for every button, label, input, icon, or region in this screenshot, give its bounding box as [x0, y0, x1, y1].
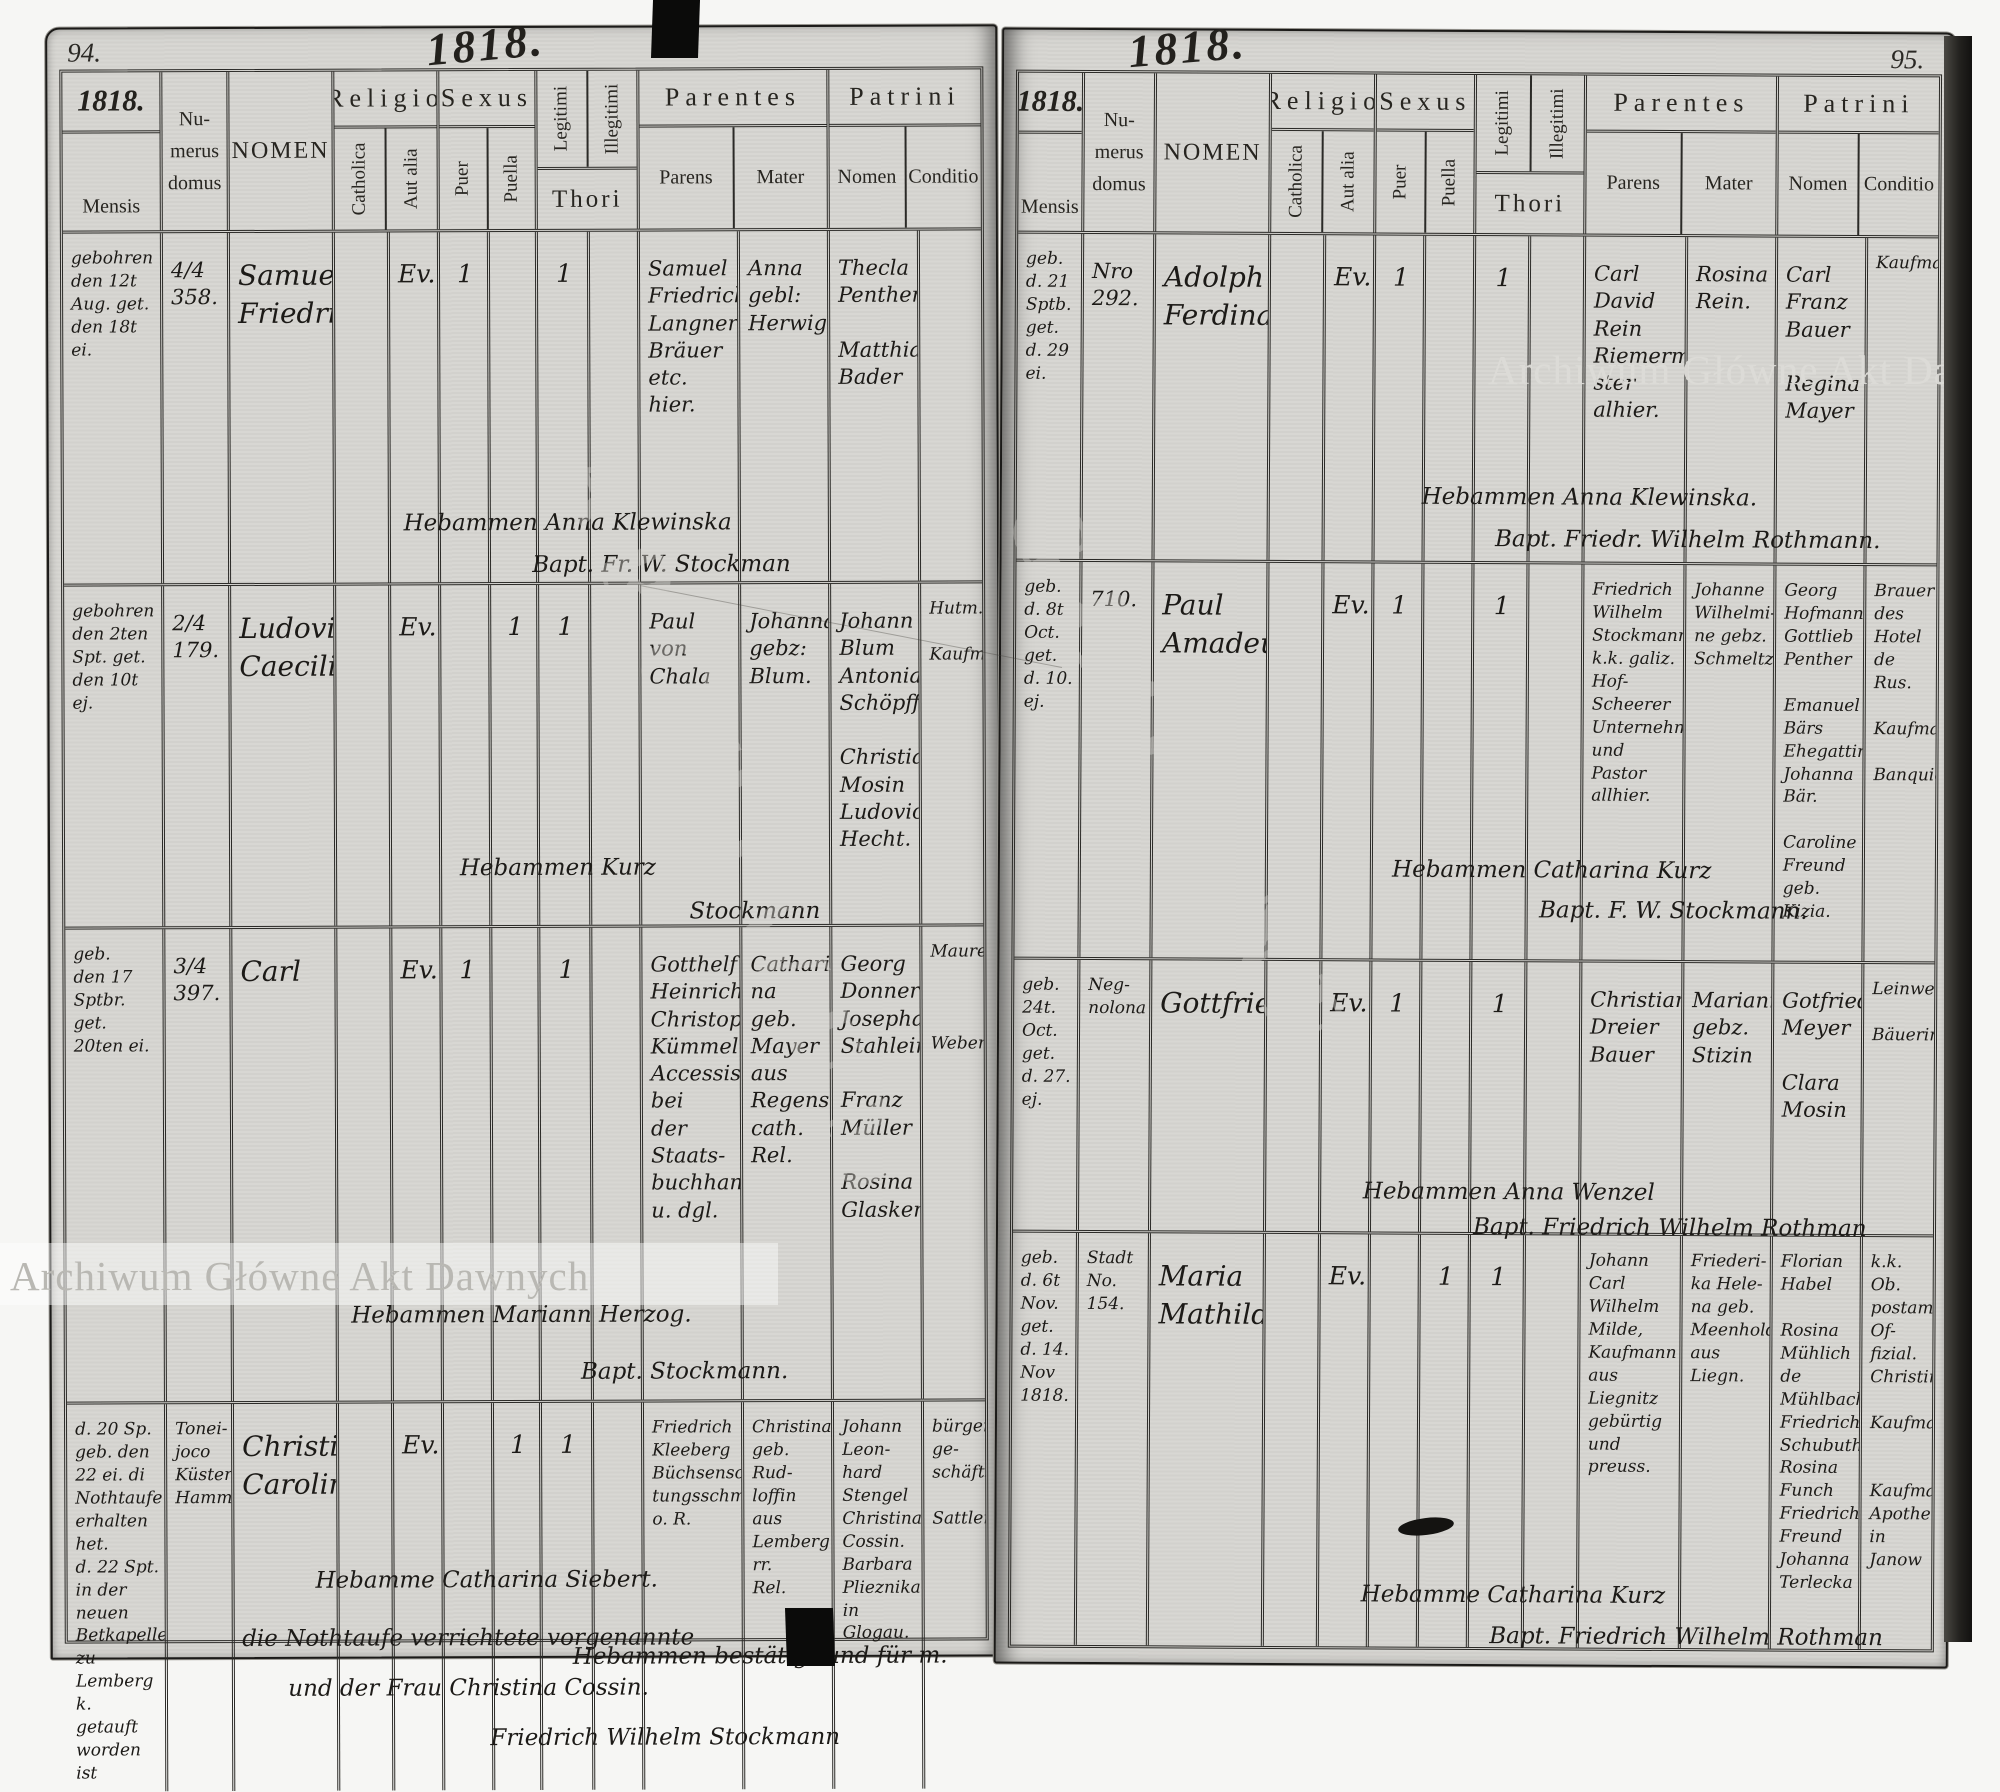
cell-conditio: Brauer des Hotel de Rus. Kaufmann Banqui… — [1861, 566, 1936, 961]
year-heading: 1818. — [424, 13, 547, 77]
header-puella: Puella — [1424, 132, 1474, 233]
header-numerus: Nu- merus domus — [159, 72, 227, 230]
cell-patrini-nomen: Thecla Penther Matthias Bader — [827, 231, 918, 581]
midwife-note: Hebamme Catharina Kurz — [1361, 1580, 1666, 1611]
cell-conditio: Leinweber Bäuerin — [1860, 964, 1934, 1234]
cell-conditio: k.k. Ob. postamts Of- fizial. Christin K… — [1858, 1237, 1933, 1649]
cell-numerus: Stadt No. 154. — [1074, 1233, 1148, 1645]
cell-nomen: Paul Amadeus — [1149, 562, 1266, 958]
cell-patrini-nomen: Georg Donner Josepha Stahlein Franz Müll… — [829, 927, 921, 1399]
header-nomen: NOMEN — [1153, 73, 1269, 232]
baptizer-note: Bapt. Friedrich Wilhelm Rothman — [1473, 1213, 1867, 1245]
midwife-note: Hebammen Kurz — [460, 853, 656, 884]
year-heading: 1818. — [1126, 16, 1248, 79]
cell-patrini-nomen: Carl Franz Bauer Regina Mayer — [1773, 238, 1865, 563]
header-conditio: Conditio — [904, 126, 981, 227]
header-nomen: NOMEN — [226, 72, 332, 230]
midwife-note: Hebammen Anna Klewinska. — [1422, 483, 1758, 515]
cell-numerus: 4/4 358. — [160, 233, 228, 583]
header-puer: Puer — [1376, 131, 1424, 232]
register-row: geb. d. 6t Nov. get. d. 14. Nov 1818. St… — [1011, 1230, 1933, 1650]
header-mensis-label: Mensis — [82, 195, 140, 218]
register-row: geb. d. 21 Sptb. get. d. 29 ei. Nro 292.… — [1017, 231, 1939, 564]
header-puer: Puer — [440, 128, 487, 229]
cell-catholica — [333, 585, 389, 925]
cell-mensis: geb. den 17 Sptbr. get. 20ten ei. — [65, 929, 164, 1401]
header-patrini-nomen: Nomen — [1778, 134, 1858, 235]
cell-legitimi: 1 — [1469, 564, 1526, 959]
table-header: 1818. Mensis Nu- merus domus NOMEN Relig… — [62, 69, 981, 230]
header-puella: Puella — [486, 128, 535, 229]
cell-mater: Marianne gebz. Stizin — [1680, 963, 1771, 1233]
register-row: gebohren den 2ten Spt. get. den 10t ej. … — [64, 580, 983, 926]
header-catholica: Catholica — [335, 128, 385, 229]
header-mater: Mater — [1680, 133, 1776, 234]
baptizer-note: Bapt. Friedr. Wilhelm Rothmann. — [1495, 525, 1881, 557]
register-page-right: 95. 1818. 1818. Mensis Nu- merus domus N… — [994, 28, 1957, 1669]
baptizer-note: Stockmann — [689, 897, 820, 927]
margin-note: Hebammen bestätigt und für m. — [573, 1641, 948, 1672]
cell-patrini-nomen: Johann Blum Antonia Schöpff Christian Mo… — [828, 584, 919, 924]
page-number: 94. — [67, 37, 101, 68]
header-aut-alia: Aut alia — [385, 128, 437, 229]
midwife-note: Hebammen Mariann Herzog. — [351, 1300, 691, 1331]
cell-mater: Johanna gebz: Blum. — [738, 584, 829, 924]
header-illegitimi: Illegitimi — [1529, 75, 1584, 171]
cell-mensis: d. 20 Sp. geb. den 22 ei. di Nothtaufe e… — [67, 1404, 165, 1791]
cell-nomen: Samuel Friedrich — [227, 233, 333, 583]
header-year: 1818. — [62, 72, 159, 130]
header-legitimi: Legitimi — [537, 71, 586, 167]
midwife-note: Hebammen Anna Wenzel — [1363, 1177, 1655, 1208]
cell-puer — [441, 1403, 492, 1790]
header-aut-alia: Aut alia — [1321, 131, 1374, 232]
baptizer-note: Bapt. Stockmann. — [581, 1357, 788, 1388]
cell-nomen: Adolph Ferdinand — [1152, 234, 1269, 560]
cell-aut-alia: Ev. — [1319, 563, 1371, 958]
cell-numerus: Neg- nolona — [1076, 960, 1149, 1230]
cell-mater: Anna gebl: Herwig — [737, 231, 828, 581]
cell-numerus: 710. — [1077, 562, 1151, 957]
cell-nomen: Maria Mathilde — [1146, 1233, 1263, 1646]
register-table: 1818. Mensis Nu- merus domus NOMEN Relig… — [1008, 70, 1942, 1653]
cell-mensis: geb. d. 6t Nov. get. d. 14. Nov 1818. — [1011, 1233, 1076, 1645]
header-mensis-label: Mensis — [1021, 196, 1079, 219]
cell-catholica — [1261, 1234, 1318, 1646]
cell-nomen: Gottfried — [1148, 960, 1264, 1231]
header-parens: Parens — [640, 127, 733, 228]
header-patrini-nomen: Nomen — [830, 127, 905, 228]
cell-aut-alia: Ev. — [1322, 235, 1374, 560]
header-religio-group: Religio Catholica Aut alia — [1268, 74, 1374, 233]
cell-aut-alia: Ev. — [391, 1403, 442, 1790]
header-mater: Mater — [732, 127, 827, 228]
margin-note: und der Frau Christina Cossin. — [288, 1673, 649, 1704]
cell-numerus: 2/4 179. — [161, 586, 229, 926]
cell-mensis: geb. d. 8t Oct. get. d. 10. ej. — [1014, 562, 1079, 957]
register-page-left: 94. 1818. 1818. Mensis Nu- merus domus N… — [45, 24, 1003, 1659]
cell-aut-alia: Ev. — [388, 585, 439, 925]
header-numerus: Nu- merus domus — [1081, 73, 1154, 231]
midwife-note: Hebammen Anna Klewinska — [403, 508, 731, 539]
cell-puella — [1419, 564, 1471, 959]
table-header: 1818. Mensis Nu- merus domus NOMEN Relig… — [1018, 73, 1939, 236]
cell-patrini-nomen: Gotfried Meyer Clara Mosin — [1770, 964, 1861, 1234]
cell-conditio: Maurer Weber — [919, 926, 985, 1398]
binding-strap-top — [651, 0, 700, 58]
cell-mensis: gebohren den 12t Aug. get. den 18t ei. — [63, 233, 161, 583]
cell-mensis: geb. d. 21 Sptb. get. d. 29 ei. — [1017, 234, 1082, 559]
header-sexus-group: Sexus Puer Puella — [1373, 74, 1474, 233]
cell-patrini-nomen: Johann Leon- hard Stengel Christina Coss… — [831, 1402, 922, 1789]
baptizer-note: Friedrich Wilhelm Stockmann — [490, 1723, 840, 1754]
cell-conditio: Hutm. Kaufm. — [918, 583, 983, 923]
cell-mensis: geb. 24t. Oct. get. d. 27. ej. — [1013, 960, 1077, 1230]
page-number: 95. — [1890, 44, 1924, 75]
cell-catholica — [1264, 563, 1321, 958]
cell-numerus: 3/4 397. — [162, 929, 231, 1401]
cell-numerus: Tonei- joco Küsters Hammer. — [164, 1404, 232, 1791]
cell-conditio — [917, 230, 982, 580]
midwife-note: Hebammen Catharina Kurz — [1392, 856, 1711, 888]
header-parentes-group: Parentes Parens Mater — [1583, 76, 1776, 235]
header-religio-group: Religio Catholica Aut alia — [331, 71, 437, 229]
cell-nomen: Christina Carolina. — [231, 1404, 337, 1791]
cell-nomen: Carl — [229, 929, 336, 1401]
header-thori-group: Legitimi Illegitimi Thori — [1473, 75, 1584, 234]
binding-strap-bottom — [785, 1608, 835, 1666]
register-row: gebohren den 12t Aug. get. den 18t ei. 4… — [63, 227, 982, 583]
header-catholica: Catholica — [1271, 131, 1322, 232]
cell-catholica — [336, 1403, 392, 1790]
cell-catholica — [332, 232, 388, 582]
cell-nomen: Ludovica Caecilie — [228, 586, 334, 926]
register-row: geb. den 17 Sptbr. get. 20ten ei. 3/4 39… — [65, 923, 985, 1401]
cell-catholica — [1267, 235, 1324, 560]
cell-mater: Cathari- na geb. Mayer aus Regensburg ca… — [739, 927, 831, 1399]
baptizer-note: Bapt. Fr. W. Stockman — [532, 550, 791, 581]
header-thori-label: Thori — [1476, 174, 1583, 234]
header-parentes-group: Parentes Parens Mater — [636, 70, 827, 229]
header-parens: Parens — [1586, 133, 1680, 234]
header-mensis: 1818. Mensis — [62, 72, 160, 230]
cell-conditio: bürgerl. ge- schäftsm. Sattler. — [921, 1401, 986, 1788]
header-thori-group: Legitimi Illegitimi Thori — [534, 71, 637, 229]
header-mensis: 1818. Mensis — [1018, 73, 1082, 231]
header-year: 1818. — [1019, 73, 1082, 131]
cell-conditio: Kaufmann — [1863, 238, 1938, 563]
header-thori-label: Thori — [538, 170, 637, 229]
cell-puer: 1 — [1372, 235, 1424, 560]
cell-numerus: Nro 292. — [1080, 234, 1154, 559]
baptizer-note: Bapt. Friedrich Wilhelm Rothman — [1489, 1622, 1883, 1654]
register-row: geb. 24t. Oct. get. d. 27. ej. Neg- nolo… — [1013, 957, 1934, 1235]
cell-aut-alia: Ev. — [1318, 961, 1369, 1231]
midwife-note: Hebamme Catharina Siebert. — [315, 1565, 658, 1596]
header-conditio: Conditio — [1857, 134, 1939, 235]
header-patrini-group: Patrini Nomen Conditio — [1775, 77, 1939, 236]
header-legitimi: Legitimi — [1477, 75, 1530, 171]
cell-mater: Friederi- ka Hele- na geb. Meenholdt aus… — [1678, 1236, 1770, 1648]
book-page-edge — [1944, 36, 1972, 1642]
register-row: d. 20 Sp. geb. den 22 ei. di Nothtaufe e… — [67, 1398, 986, 1791]
register-table: 1818. Mensis Nu- merus domus NOMEN Relig… — [59, 66, 988, 1643]
register-row: geb. d. 8t Oct. get. d. 10. ej. 710. Pau… — [1014, 559, 1936, 962]
cell-catholica — [1263, 961, 1319, 1231]
header-illegitimi: Illegitimi — [586, 71, 637, 167]
header-patrini-group: Patrini Nomen Conditio — [826, 69, 981, 228]
cell-patrini-nomen: Florian Habel Rosina Mühlich de Mühlbach… — [1768, 1237, 1860, 1649]
baptizer-note: Bapt. F. W. Stockmann. — [1539, 896, 1808, 927]
header-sexus-group: Sexus Puer Puella — [436, 71, 535, 229]
cell-puer: 1 — [1369, 563, 1421, 958]
cell-mensis: gebohren den 2ten Spt. get. den 10t ej. — [64, 586, 162, 926]
